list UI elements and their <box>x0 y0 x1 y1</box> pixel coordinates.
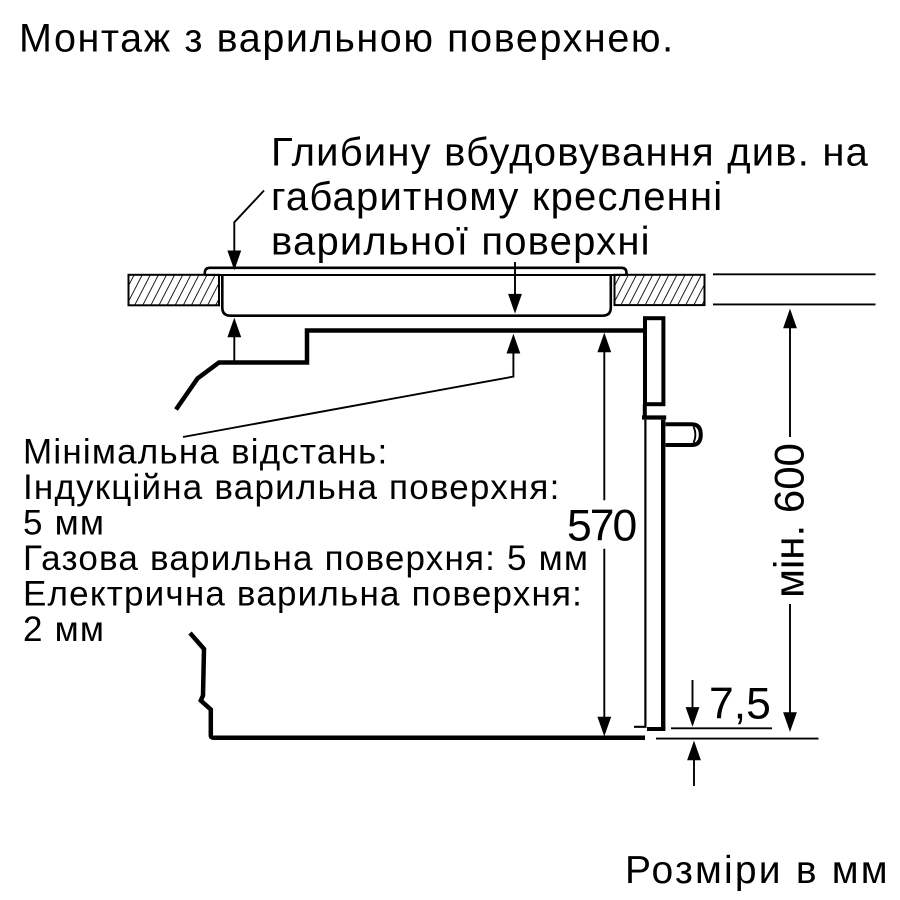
svg-text:7,5: 7,5 <box>709 680 771 729</box>
svg-text:Глибину вбудовування див. на: Глибину вбудовування див. на <box>271 131 869 175</box>
svg-text:2 мм: 2 мм <box>23 610 105 649</box>
svg-text:Розміри в мм: Розміри в мм <box>625 849 890 892</box>
svg-text:Індукційна варильна поверхня:: Індукційна варильна поверхня: <box>23 468 561 507</box>
svg-text:мін. 600: мін. 600 <box>766 443 813 598</box>
svg-text:5 мм: 5 мм <box>23 504 105 543</box>
svg-text:Мінімальна відстань:: Мінімальна відстань: <box>23 433 388 472</box>
svg-text:Монтаж з варильною поверхнею.: Монтаж з варильною поверхнею. <box>19 17 675 61</box>
svg-text:Газова варильна поверхня: 5 мм: Газова варильна поверхня: 5 мм <box>23 539 589 578</box>
svg-text:570: 570 <box>567 502 636 551</box>
svg-text:габаритному кресленні: габаритному кресленні <box>271 175 723 219</box>
svg-text:варильної поверхні: варильної поверхні <box>271 220 651 264</box>
svg-text:Електрична варильна поверхня:: Електрична варильна поверхня: <box>23 575 583 614</box>
